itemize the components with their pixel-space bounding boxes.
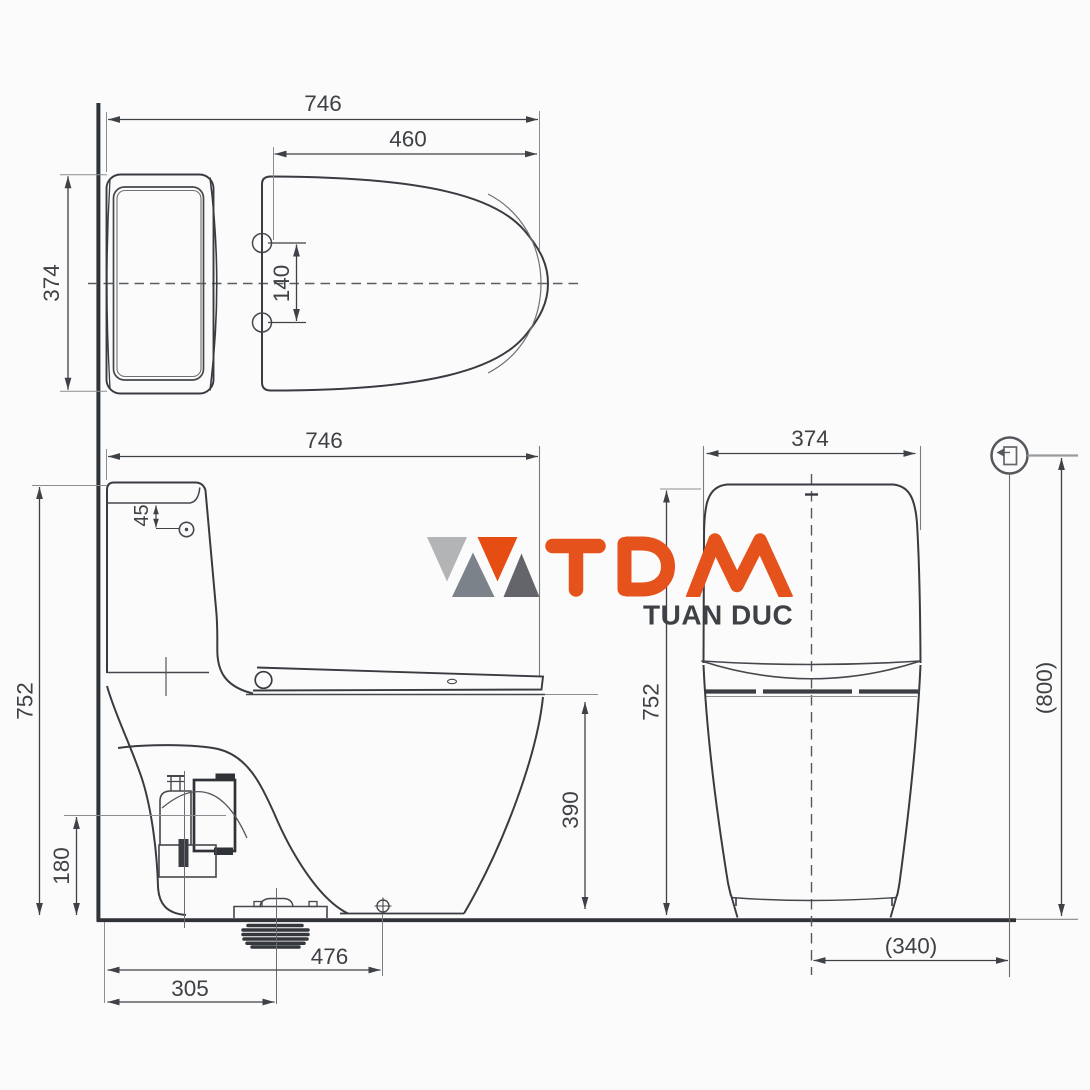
- svg-text:374: 374: [39, 264, 64, 302]
- svg-text:140: 140: [269, 265, 294, 303]
- svg-text:(800): (800): [1032, 662, 1057, 715]
- svg-text:45: 45: [131, 504, 153, 526]
- svg-text:460: 460: [389, 127, 427, 152]
- svg-text:752: 752: [13, 682, 38, 720]
- svg-text:746: 746: [304, 91, 342, 116]
- svg-text:752: 752: [639, 683, 664, 721]
- svg-text:390: 390: [558, 791, 583, 829]
- svg-text:746: 746: [305, 428, 343, 453]
- svg-text:(340): (340): [885, 934, 938, 959]
- svg-text:305: 305: [171, 976, 209, 1001]
- svg-text:180: 180: [49, 847, 74, 885]
- svg-text:TUAN DUC: TUAN DUC: [643, 600, 793, 631]
- svg-text:374: 374: [791, 426, 829, 451]
- svg-text:476: 476: [311, 944, 349, 969]
